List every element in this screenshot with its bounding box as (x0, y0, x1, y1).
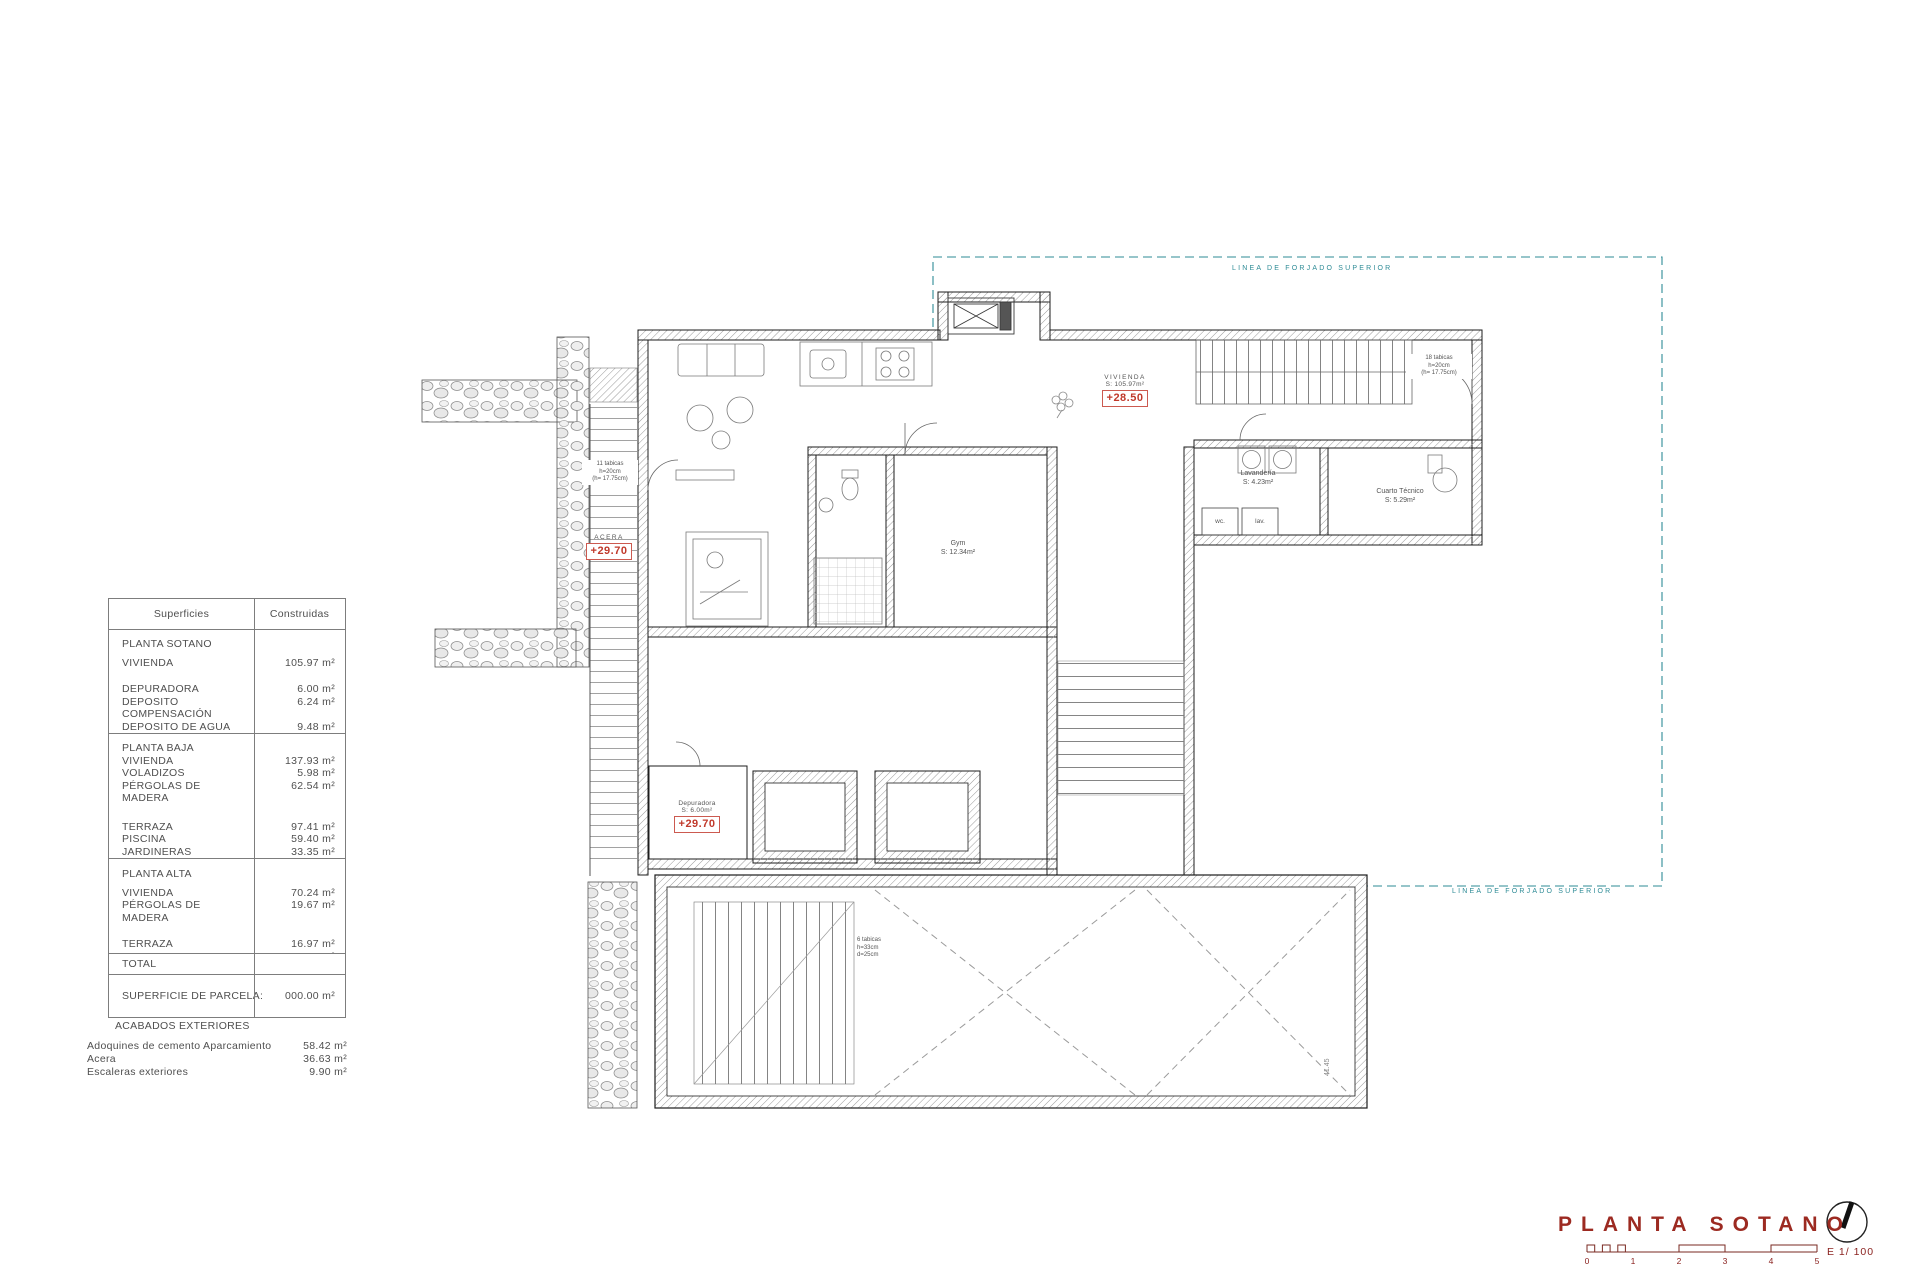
row-label: PÉRGOLAS DE MADERA (109, 899, 250, 924)
scale-tick-5: 5 (1812, 1256, 1822, 1266)
finish-label: Escaleras exteriores (87, 1066, 309, 1079)
row-label: JARDINERAS (109, 846, 250, 859)
level-value: +29.70 (586, 543, 633, 560)
table-row: DEPOSITO DE AGUA 9.48 m² (109, 721, 345, 734)
section-planta-sotano: PLANTA SOTANO VIVIENDA 105.97 m² DEPURAD… (109, 630, 345, 734)
section-title: PLANTA ALTA (109, 868, 345, 881)
note-line: 6 tabicas (857, 937, 917, 945)
scale-tick-0: 0 (1582, 1256, 1592, 1266)
level-value: +28.50 (1102, 390, 1149, 407)
stairs-main (1196, 340, 1412, 404)
finish-value: 58.42 m² (303, 1040, 347, 1053)
level-value: +29.70 (674, 816, 721, 833)
finish-value: 36.63 m² (303, 1053, 347, 1066)
room-area: S: 12.34m² (918, 549, 998, 558)
finish-label: Adoquines de cemento Aparcamiento (87, 1040, 303, 1053)
row-label: DEPOSITO DE AGUA (109, 721, 250, 734)
section-title: PLANTA SOTANO (109, 638, 345, 651)
parcel-value: 000.00 m² (272, 990, 345, 1003)
room-area: S: 105.97m² (1085, 381, 1165, 388)
note-line: h=20cm (583, 469, 637, 477)
finish-row: Adoquines de cemento Aparcamiento 58.42 … (87, 1040, 347, 1053)
garage-dimension: 41.45 (1324, 1058, 1331, 1076)
row-value: 5.98 m² (250, 767, 345, 780)
table-row: TERRAZA 16.97 m² (109, 938, 345, 951)
stair-note-left: 11 tabicas h=20cm (h= 17.75cm) (582, 460, 638, 485)
wc-label: wc. (1204, 518, 1236, 525)
level-marker-vivienda: VIVIENDA S: 105.97m² +28.50 (1085, 374, 1165, 407)
parcel-label: SUPERFICIE DE PARCELA: (109, 990, 272, 1003)
table-row: VIVIENDA 70.24 m² (109, 887, 345, 900)
note-line: (h= 17.75cm) (1407, 370, 1471, 378)
row-value: 9.48 m² (250, 721, 345, 734)
note-line: 18 tabicas (1407, 355, 1471, 363)
section-title: PLANTA BAJA (109, 742, 345, 755)
table-row: PISCINA 59.40 m² (109, 833, 345, 846)
room-label-lavanderia: Lavandería S: 4.23m² (1216, 470, 1300, 487)
row-value: 6.00 m² (250, 683, 345, 696)
stair-note-garage: 6 tabicas h=33cm d=25cm (856, 936, 918, 961)
table-row: VIVIENDA 137.93 m² (109, 755, 345, 768)
section-planta-alta: PLANTA ALTA VIVIENDA 70.24 m² PÉRGOLAS D… (109, 859, 345, 954)
surfaces-table: Superficies Construidas PLANTA SOTANO VI… (108, 598, 346, 1018)
sheet-title: PLANTA SOTANO (1558, 1213, 1852, 1237)
scale-tick-4: 4 (1766, 1256, 1776, 1266)
row-label: DEPOSITO COMPENSACIÓN (109, 696, 250, 721)
table-row: DEPOSITO COMPENSACIÓN 6.24 m² (109, 696, 345, 721)
row-label: TERRAZA (109, 821, 250, 834)
table-row: DEPURADORA 6.00 m² (109, 683, 345, 696)
room-area: S: 6.00m² (660, 807, 734, 814)
level-marker-acera: ACERA +29.70 (578, 534, 640, 560)
section-parcela: SUPERFICIE DE PARCELA: 000.00 m² (109, 975, 345, 1017)
table-header-construidas: Construidas (254, 608, 345, 620)
note-line: h=33cm (857, 945, 917, 953)
note-line: (h= 17.75cm) (583, 476, 637, 484)
room-area: S: 5.29m² (1352, 497, 1448, 506)
table-divider (254, 599, 255, 1017)
total-label: TOTAL (109, 958, 345, 971)
row-value: 59.40 m² (250, 833, 345, 846)
table-header: Superficies Construidas (109, 599, 345, 630)
note-line: 11 tabicas (583, 461, 637, 469)
scale-tick-2: 2 (1674, 1256, 1684, 1266)
row-label: VOLADIZOS (109, 767, 250, 780)
scale-tick-1: 1 (1628, 1256, 1638, 1266)
row-value: 97.41 m² (250, 821, 345, 834)
table-row: JARDINERAS 33.35 m² (109, 846, 345, 859)
blueprint-canvas: Superficies Construidas PLANTA SOTANO VI… (0, 0, 1920, 1280)
row-label: VIVIENDA (109, 887, 250, 900)
note-line: d=25cm (857, 952, 917, 960)
finish-label: Acera (87, 1053, 303, 1066)
table-row: VOLADIZOS 5.98 m² (109, 767, 345, 780)
level-marker-depuradora: Depuradora S: 6.00m² +29.70 (660, 800, 734, 833)
row-label: DEPURADORA (109, 683, 250, 696)
finish-row: Acera 36.63 m² (87, 1053, 347, 1066)
row-value: 62.54 m² (250, 780, 345, 805)
finish-value: 9.90 m² (309, 1066, 347, 1079)
row-value: 105.97 m² (250, 657, 345, 670)
row-value: 33.35 m² (250, 846, 345, 859)
room-name: Gym (918, 540, 998, 549)
stair-note-right: 18 tabicas h=20cm (h= 17.75cm) (1406, 354, 1472, 379)
table-row: VIVIENDA 105.97 m² (109, 657, 345, 670)
room-label-cuarto-tecnico: Cuarto Técnico S: 5.29m² (1352, 488, 1448, 505)
row-label: PÉRGOLAS DE MADERA (109, 780, 250, 805)
row-label: TERRAZA (109, 938, 250, 951)
forjado-label-top: LINEA DE FORJADO SUPERIOR (1232, 265, 1392, 272)
room-name: Lavandería (1216, 470, 1300, 479)
row-label: VIVIENDA (109, 755, 250, 768)
scale-bar (1587, 1245, 1817, 1252)
row-value: 137.93 m² (250, 755, 345, 768)
room-area: S: 4.23m² (1216, 479, 1300, 488)
table-header-superficies: Superficies (109, 608, 254, 620)
row-label: PISCINA (109, 833, 250, 846)
row-value: 70.24 m² (250, 887, 345, 900)
note-line: h=20cm (1407, 363, 1471, 371)
table-row: PÉRGOLAS DE MADERA 62.54 m² (109, 780, 345, 805)
row-label: VIVIENDA (109, 657, 250, 670)
table-row: TERRAZA 97.41 m² (109, 821, 345, 834)
room-name: Cuarto Técnico (1352, 488, 1448, 497)
finish-row: Escaleras exteriores 9.90 m² (87, 1066, 347, 1079)
row-value: 19.67 m² (250, 899, 345, 924)
room-name: Depuradora (660, 800, 734, 807)
exterior-finishes: ACABADOS EXTERIORES Adoquines de cemento… (87, 1020, 347, 1079)
lav-label: lav. (1244, 518, 1276, 525)
forjado-label-right: LINEA DE FORJADO SUPERIOR (1452, 888, 1612, 895)
row-value: 6.24 m² (250, 696, 345, 721)
section-total: TOTAL (109, 954, 345, 975)
row-value: 16.97 m² (250, 938, 345, 951)
exterior-finishes-title: ACABADOS EXTERIORES (87, 1020, 347, 1032)
sidewalk-strip (590, 368, 637, 876)
scale-tick-3: 3 (1720, 1256, 1730, 1266)
table-row: SUPERFICIE DE PARCELA: 000.00 m² (109, 990, 345, 1003)
scale-label: E 1/ 100 (1827, 1246, 1874, 1258)
table-row: PÉRGOLAS DE MADERA 19.67 m² (109, 899, 345, 924)
room-label-gym: Gym S: 12.34m² (918, 540, 998, 557)
room-name: ACERA (578, 534, 640, 541)
section-planta-baja: PLANTA BAJA VIVIENDA 137.93 m² VOLADIZOS… (109, 734, 345, 859)
stairs-ramp (1058, 661, 1184, 795)
stairs-garage (694, 902, 854, 1084)
room-name: VIVIENDA (1085, 374, 1165, 381)
